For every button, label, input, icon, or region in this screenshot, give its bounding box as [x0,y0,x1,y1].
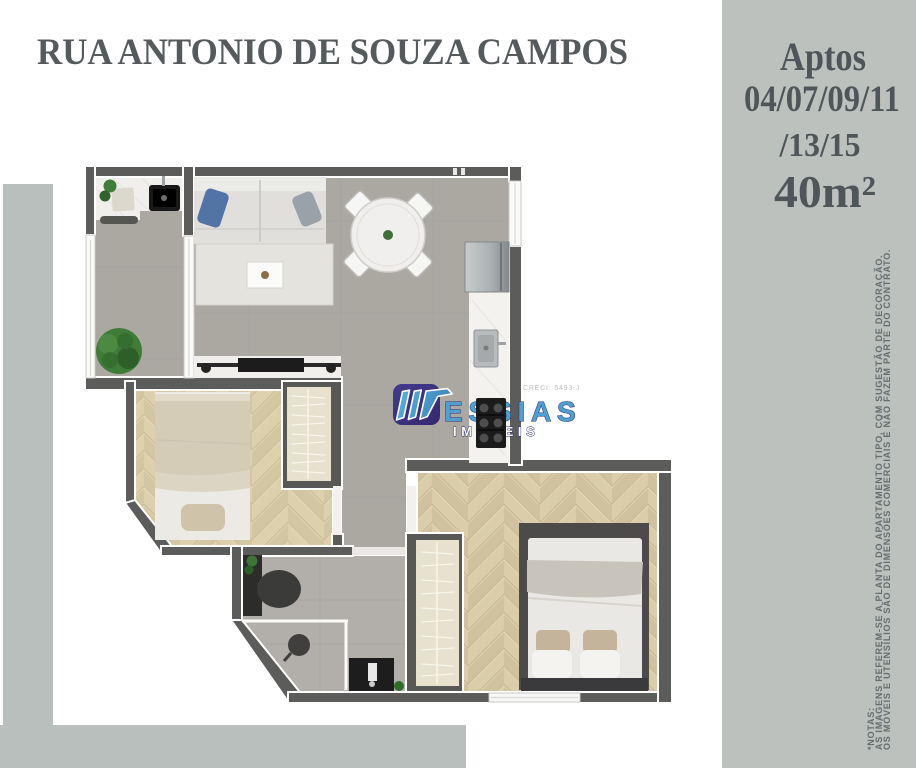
svg-text:CRECI: 5493-J: CRECI: 5493-J [523,385,580,392]
svg-text:RUA ANTONIO DE SOUZA CAMPOS: RUA ANTONIO DE SOUZA CAMPOS [37,31,628,72]
svg-text:/13/15: /13/15 [779,127,861,164]
svg-text:OS MÓVEIS E UTENSÍLIOS SÃO DE: OS MÓVEIS E UTENSÍLIOS SÃO DE DIMENSÕES … [881,249,892,750]
svg-text:Aptos: Aptos [780,34,866,79]
svg-text:ESSIAS: ESSIAS [444,396,582,427]
svg-text:40m²: 40m² [774,166,876,217]
svg-text:04/07/09/11: 04/07/09/11 [744,79,900,120]
